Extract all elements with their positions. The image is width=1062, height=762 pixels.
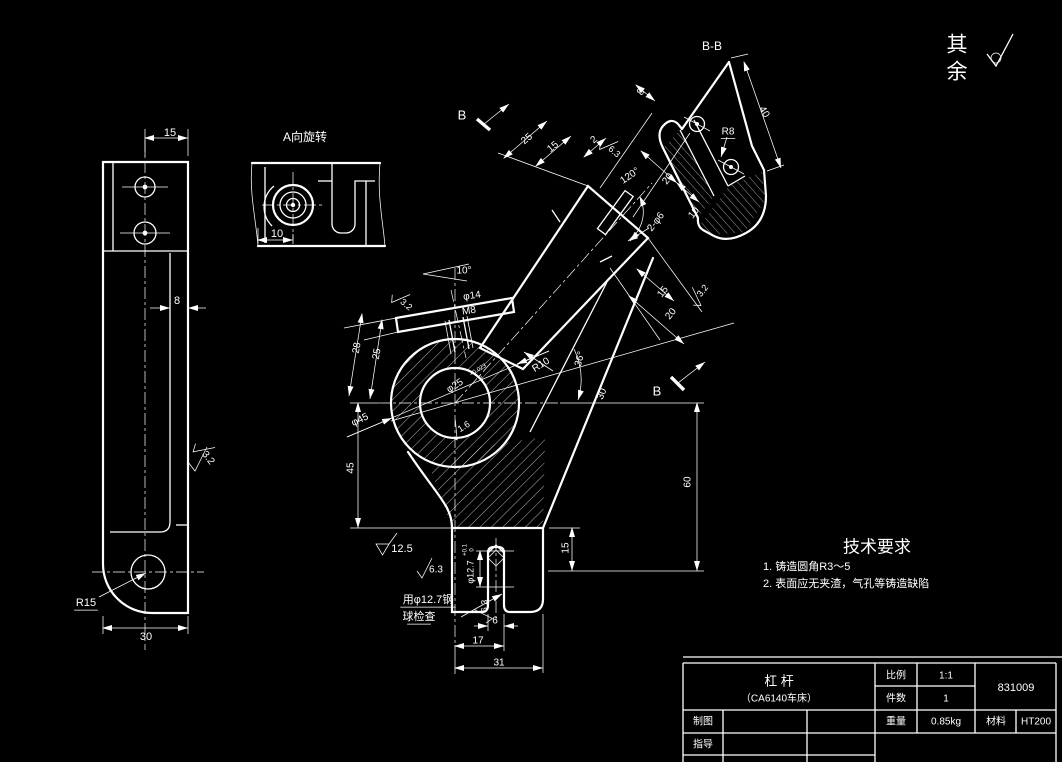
svg-text:球检查: 球检查 <box>403 609 436 623</box>
tolerance-label: +0.1 <box>463 543 469 556</box>
svg-text:10: 10 <box>271 228 283 240</box>
dimension-label: 31 <box>493 658 505 669</box>
svg-text:15: 15 <box>561 542 572 554</box>
aux-view-boss-hole <box>264 185 313 226</box>
svg-text:B: B <box>653 383 662 398</box>
dimension-label: 10° <box>456 266 471 277</box>
section-view-title: B-B <box>702 39 722 53</box>
drawing-number: 831009 <box>998 682 1035 694</box>
svg-text:R15: R15 <box>76 597 96 609</box>
dimension-label: 120° <box>618 166 641 187</box>
aux-view-slot <box>318 163 375 246</box>
qty-label: 件数 <box>886 692 906 705</box>
svg-text:φ12.7: φ12.7 <box>465 560 475 583</box>
svg-text:40: 40 <box>756 105 771 121</box>
svg-text:8: 8 <box>174 295 180 307</box>
svg-text:15: 15 <box>164 127 176 139</box>
dimension-label: 25 <box>371 347 384 360</box>
svg-text:B: B <box>458 107 467 122</box>
tolerance-label: 0 <box>470 548 476 552</box>
dimension-label: 15 <box>561 542 572 554</box>
svg-text:6.3: 6.3 <box>429 565 443 576</box>
left-side-view <box>92 129 207 650</box>
title-block-grid <box>683 663 1056 762</box>
svg-text:60: 60 <box>683 476 694 488</box>
aux-view-title: A向旋转 <box>283 129 327 144</box>
radius-label: R15 <box>74 597 98 610</box>
tech-requirement-item: 1. 铸造圆角R3～5 <box>763 559 850 573</box>
svg-text:120°: 120° <box>618 166 641 187</box>
dimension-label: 10 <box>271 228 283 240</box>
weight-label: 重量 <box>886 715 906 728</box>
svg-text:M8: M8 <box>461 305 477 318</box>
dimension-label: 17 <box>472 636 484 647</box>
weight-value: 0.85kg <box>931 717 961 728</box>
main-view <box>344 104 734 674</box>
svg-text:用φ12.7钢: 用φ12.7钢 <box>403 593 454 606</box>
svg-text:12.5: 12.5 <box>391 543 412 555</box>
dimension-label: φ45 <box>350 411 371 429</box>
svg-text:6.3: 6.3 <box>606 144 622 160</box>
svg-text:2-φ6: 2-φ6 <box>645 210 667 234</box>
dimension-label: 20 <box>663 306 679 322</box>
note-label: 球检查 <box>403 609 436 624</box>
svg-text:30: 30 <box>140 631 152 643</box>
svg-text:1.6: 1.6 <box>456 419 472 434</box>
dimension-label: 8 <box>635 86 647 98</box>
dimension-label: 15 <box>545 139 561 155</box>
svg-text:15: 15 <box>655 284 671 300</box>
roughness-label: 6.3 <box>417 558 443 578</box>
roughness-label: 3.2 <box>190 436 222 469</box>
dimension-label: 15 <box>655 284 671 300</box>
svg-text:φ14: φ14 <box>463 289 482 302</box>
svg-text:15: 15 <box>545 139 561 155</box>
dimension-label: 15 <box>164 127 176 139</box>
svg-text:31: 31 <box>493 658 505 669</box>
svg-text:10°: 10° <box>456 266 471 277</box>
note-label: 用φ12.7钢 <box>400 593 455 607</box>
dimension-label: φ12.7 <box>465 560 475 583</box>
svg-text:6.3: 6.3 <box>479 600 489 613</box>
dimension-label: 30 <box>595 386 610 401</box>
svg-text:30: 30 <box>595 386 610 401</box>
advisor-label: 指导 <box>693 738 713 751</box>
svg-text:17: 17 <box>472 636 484 647</box>
fork-slot <box>597 191 633 235</box>
drawing-canvas: 其 余 <box>0 0 1062 762</box>
dimension-label: 30 <box>140 631 152 643</box>
dimension-label: φ25 <box>445 377 466 396</box>
part-model: （CA6140车床） <box>741 692 817 705</box>
svg-text:20: 20 <box>663 306 679 322</box>
svg-text:3.2: 3.2 <box>398 297 414 313</box>
dimension-label: 2-φ6 <box>645 210 667 234</box>
dimension-label: 60 <box>683 476 694 488</box>
svg-text:R8: R8 <box>722 127 735 138</box>
section-label: B <box>653 383 662 398</box>
scale-label: 比例 <box>886 669 906 682</box>
radius-label: R8 <box>721 127 735 139</box>
material-value: HT200 <box>1021 717 1051 728</box>
svg-text:45: 45 <box>346 462 357 474</box>
dimension-label: φ14 <box>463 289 482 302</box>
thread-label: M8 <box>461 305 477 318</box>
scale-value: 1:1 <box>939 671 953 682</box>
svg-text:+0.1: +0.1 <box>463 543 469 556</box>
section-label: B <box>458 107 467 122</box>
title-block: 杠 杆 （CA6140车床） 比例 1:1 件数 1 831009 制图 重量 … <box>683 663 1056 762</box>
tech-requirements-title: 技术要求 <box>843 537 911 556</box>
roughness-cast-label: 12.5 <box>376 533 413 555</box>
svg-text:3.2: 3.2 <box>695 283 711 299</box>
drawing-svg: 其 余 <box>0 0 1062 762</box>
dimension-label: 8 <box>174 295 180 307</box>
drawn-by-label: 制图 <box>693 715 713 728</box>
corner-note-char2: 余 <box>947 61 968 84</box>
svg-text:φ25: φ25 <box>445 377 466 396</box>
svg-text:0: 0 <box>470 548 476 552</box>
qty-value: 1 <box>943 694 949 705</box>
svg-text:8: 8 <box>635 86 647 98</box>
dimension-label: 6 <box>492 616 498 627</box>
dimension-label: 28 <box>351 341 364 354</box>
corner-note-char1: 其 <box>947 34 968 57</box>
svg-text:25: 25 <box>371 347 384 360</box>
corner-roughness-icon <box>987 34 1013 66</box>
svg-text:3.2: 3.2 <box>199 449 216 467</box>
roughness-label: 3.2 <box>684 279 713 308</box>
svg-text:28: 28 <box>351 341 364 354</box>
dimension-label: 40 <box>756 105 771 121</box>
svg-text:φ45: φ45 <box>350 411 371 429</box>
tech-requirement-item: 2. 表面应无夹渣，气孔等铸造缺陷 <box>763 576 929 590</box>
dimension-label: 45 <box>346 462 357 474</box>
left-view-dimensions <box>99 129 207 634</box>
upper-arm <box>480 186 648 369</box>
svg-text:6: 6 <box>492 616 498 627</box>
tech-requirements: 技术要求 1. 铸造圆角R3～5 2. 表面应无夹渣，气孔等铸造缺陷 <box>763 537 929 589</box>
material-label: 材料 <box>986 715 1006 728</box>
roughness-label: 3.2 <box>388 286 417 315</box>
part-name: 杠 杆 <box>764 673 794 688</box>
